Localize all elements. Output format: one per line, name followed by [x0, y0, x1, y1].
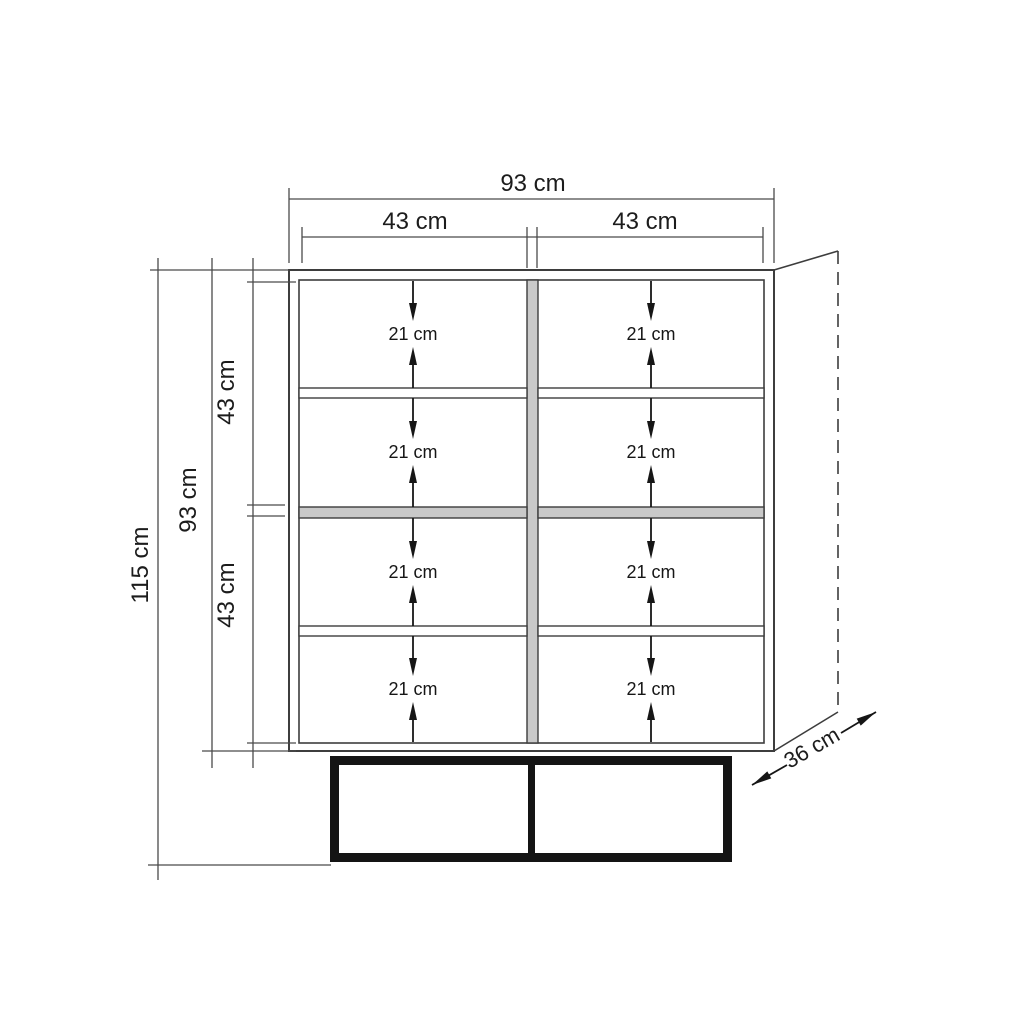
dim-label-lower-half: 43 cm	[213, 562, 240, 627]
compartment-height-label: 21 cm	[388, 562, 437, 582]
depth-arrow-upper-icon	[857, 712, 876, 726]
compartment-height-label: 21 cm	[626, 679, 675, 699]
cabinet-body	[289, 270, 774, 751]
shelf-middle-right	[538, 507, 764, 518]
furniture-dimension-drawing: 93 cm 43 cm 43 cm 115 cm 93 cm 43 cm 43 …	[0, 0, 1024, 1024]
center-divider-panel	[527, 280, 538, 743]
base-pedestal	[335, 757, 728, 861]
dim-label-right-column: 43 cm	[612, 208, 677, 235]
depth-arrow-lower-icon	[752, 771, 771, 785]
top-dimensions: 93 cm 43 cm 43 cm	[289, 170, 774, 268]
shelf-top-left	[299, 388, 527, 398]
compartment-height-label: 21 cm	[388, 679, 437, 699]
depth-edge-top	[774, 251, 838, 270]
shelf-bottom-right	[538, 626, 764, 636]
compartment-height-label: 21 cm	[626, 324, 675, 344]
shelf-middle-left	[299, 507, 527, 518]
compartment-height-label: 21 cm	[626, 562, 675, 582]
depth-projection	[774, 251, 838, 751]
dim-label-upper-half: 43 cm	[213, 359, 240, 424]
dim-label-total-width: 93 cm	[500, 170, 565, 197]
compartment-height-label: 21 cm	[388, 442, 437, 462]
shelf-top-right	[538, 388, 764, 398]
dim-label-total-height: 115 cm	[127, 527, 154, 604]
dim-label-left-column: 43 cm	[382, 208, 447, 235]
dim-label-depth: 36 cm	[780, 722, 844, 774]
compartment-height-label: 21 cm	[626, 442, 675, 462]
shelf-bottom-left	[299, 626, 527, 636]
compartment-height-label: 21 cm	[388, 324, 437, 344]
dim-label-body-height: 93 cm	[175, 467, 202, 532]
diagram-canvas: 93 cm 43 cm 43 cm 115 cm 93 cm 43 cm 43 …	[0, 0, 1024, 1024]
